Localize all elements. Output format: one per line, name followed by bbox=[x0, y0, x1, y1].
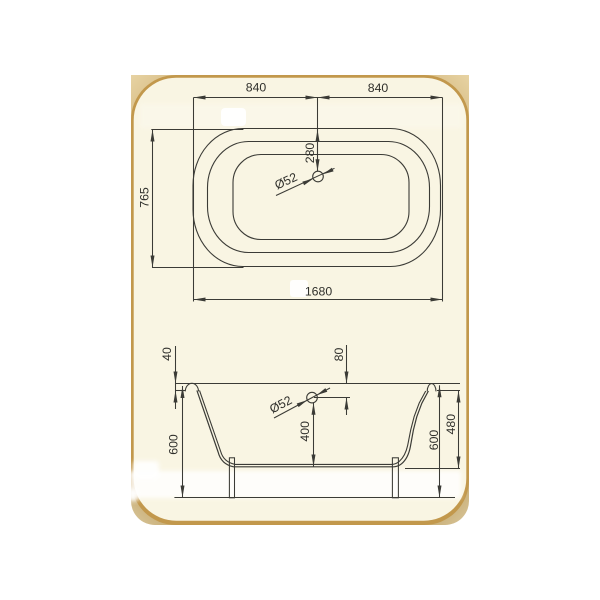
svg-text:840: 840 bbox=[368, 81, 389, 95]
svg-text:400: 400 bbox=[298, 421, 312, 442]
svg-text:600: 600 bbox=[166, 434, 180, 455]
svg-text:1680: 1680 bbox=[305, 284, 333, 298]
svg-text:840: 840 bbox=[246, 81, 267, 95]
svg-text:765: 765 bbox=[138, 187, 152, 208]
svg-text:80: 80 bbox=[332, 348, 346, 362]
svg-text:280: 280 bbox=[303, 143, 317, 164]
svg-text:480: 480 bbox=[444, 414, 458, 435]
svg-text:600: 600 bbox=[427, 430, 441, 451]
svg-text:40: 40 bbox=[160, 347, 174, 361]
